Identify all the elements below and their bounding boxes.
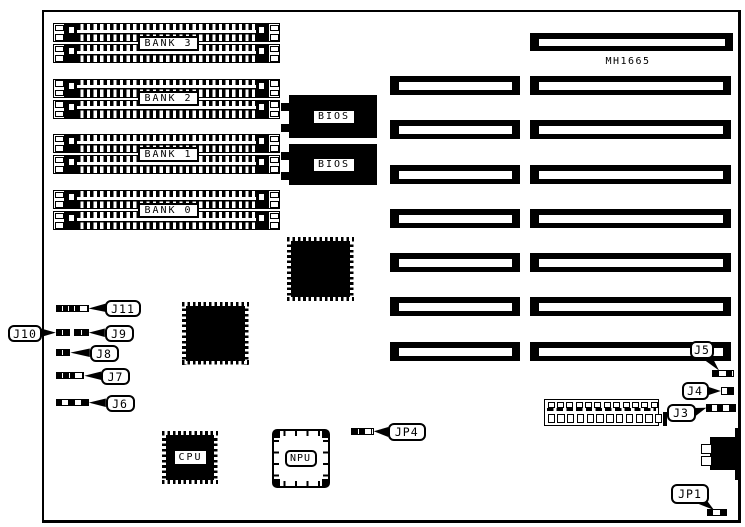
- leader-j6: [89, 399, 106, 408]
- jumper-label-j9: J9: [105, 325, 134, 342]
- jumper-label-j4: J4: [682, 382, 709, 400]
- jumper-label-j7: J7: [101, 368, 130, 385]
- jumper-label-j6: J6: [106, 395, 135, 412]
- jumper-label-j8: J8: [90, 345, 119, 362]
- leader-j10: [41, 329, 56, 338]
- leader-j11: [89, 304, 107, 313]
- jumper-label-jp4: JP4: [388, 423, 426, 441]
- leader-j8: [70, 349, 90, 358]
- leader-j9: [89, 329, 105, 338]
- leader-j4: [708, 387, 721, 395]
- jumper-label-j11: J11: [105, 300, 141, 317]
- leader-j7: [84, 372, 101, 381]
- leader-j3: [695, 408, 706, 417]
- jumper-label-j10: J10: [8, 325, 42, 342]
- jumper-label-j5: J5: [690, 341, 714, 359]
- jumper-label-jp1: JP1: [671, 484, 709, 504]
- leader-jp4: [374, 427, 389, 437]
- jumper-label-j3: J3: [667, 404, 696, 422]
- motherboard-diagram: MH1665BANK 3BANK 2BANK 1BANK 0BIOSBIOSCP…: [0, 0, 745, 527]
- callout-leader-lines: [0, 0, 745, 527]
